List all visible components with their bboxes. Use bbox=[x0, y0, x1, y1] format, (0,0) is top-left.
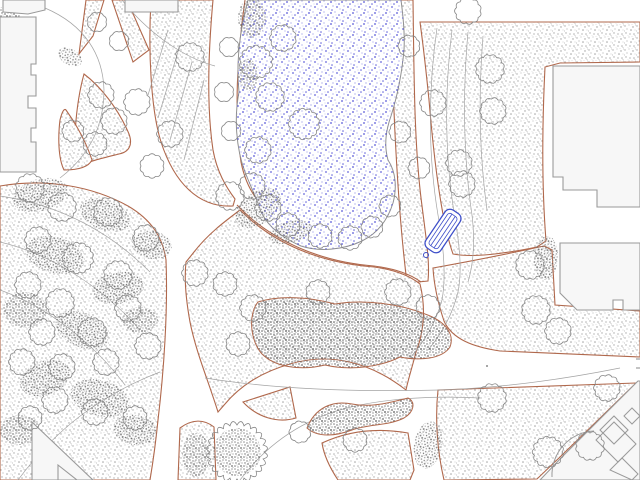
building-top-middle bbox=[125, 0, 178, 12]
building-top-left-small bbox=[3, 0, 45, 14]
building-east-large bbox=[553, 66, 640, 207]
canopy-cluster bbox=[122, 307, 158, 333]
canopy-cluster bbox=[213, 428, 261, 476]
canopy-cluster bbox=[182, 433, 210, 477]
site-plan-canvas bbox=[0, 0, 640, 480]
site-plan-drawing bbox=[0, 0, 640, 480]
vegetation-south-wedge bbox=[322, 430, 414, 480]
canopy-cluster bbox=[238, 59, 258, 91]
building-east-lower bbox=[560, 243, 640, 310]
building-west-large bbox=[0, 17, 36, 172]
junction-point bbox=[486, 365, 488, 367]
road-strip-top-right bbox=[544, 0, 640, 20]
